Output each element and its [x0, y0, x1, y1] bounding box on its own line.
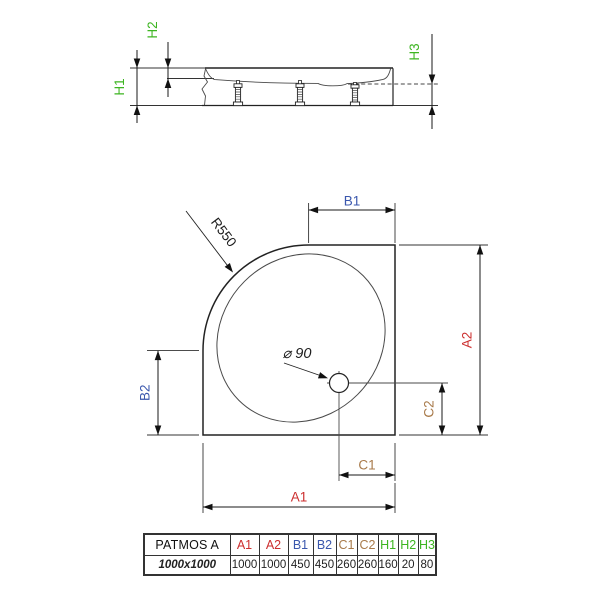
c1-label: C1 [358, 458, 375, 473]
value-c1: 260 [336, 556, 357, 576]
foot [295, 81, 304, 106]
b2-dimension: B2 [138, 351, 200, 435]
a1-label: A1 [291, 490, 308, 505]
h1-label: H1 [112, 78, 127, 95]
b1-dimension: B1 [309, 194, 395, 244]
value-h3: 80 [418, 556, 436, 576]
header-h2: H2 [398, 534, 418, 556]
foot [233, 81, 242, 106]
b1-label: B1 [344, 194, 361, 209]
radius-label: R550 [208, 215, 239, 250]
foot [350, 83, 359, 106]
c1-dimension: C1 [339, 443, 395, 481]
size-cell: 1000x1000 [144, 556, 230, 576]
header-h1: H1 [378, 534, 398, 556]
a2-label: A2 [460, 332, 475, 349]
c2-label: C2 [422, 400, 437, 417]
header-row: PATMOS A A1 A2 B1 B2 C1 C2 H1 H2 H3 [144, 534, 436, 556]
header-a1: A1 [230, 534, 259, 556]
spec-table: PATMOS A A1 A2 B1 B2 C1 C2 H1 H2 H3 1000… [143, 533, 437, 576]
a2-dimension: A2 [399, 245, 488, 435]
value-b1: 450 [288, 556, 313, 576]
value-a2: 1000 [259, 556, 288, 576]
break-line [202, 69, 208, 105]
value-h1: 160 [378, 556, 398, 576]
product-name-cell: PATMOS A [144, 534, 230, 556]
adjustable-feet [233, 81, 359, 106]
value-c2: 260 [357, 556, 378, 576]
header-c2: C2 [357, 534, 378, 556]
h2-dimension: H2 [145, 21, 171, 97]
value-h2: 20 [398, 556, 418, 576]
c2-dimension: C2 [422, 383, 446, 435]
tray-outline [203, 245, 395, 435]
header-c1: C1 [336, 534, 357, 556]
header-b1: B1 [288, 534, 313, 556]
technical-drawing-page: H1 H2 H3 R550 [0, 0, 600, 600]
h2-label: H2 [145, 21, 160, 38]
h3-label: H3 [407, 43, 422, 60]
plan-view: R550 ⌀ 90 B1 B2 [138, 194, 489, 514]
header-b2: B2 [313, 534, 336, 556]
side-view: H1 H2 H3 [112, 21, 438, 129]
a1-dimension: A1 [203, 443, 395, 513]
radius-leader: R550 [186, 211, 239, 274]
h1-dimension: H1 [112, 50, 140, 123]
basin-section-line [206, 69, 391, 86]
header-a2: A2 [259, 534, 288, 556]
drain-label: ⌀ 90 [283, 346, 312, 362]
value-b2: 450 [313, 556, 336, 576]
drawing-canvas: H1 H2 H3 R550 [0, 0, 600, 600]
value-a1: 1000 [230, 556, 259, 576]
header-h3: H3 [418, 534, 436, 556]
values-row: 1000x1000 1000 1000 450 450 260 260 160 … [144, 556, 436, 576]
h3-dimension: H3 [407, 34, 435, 129]
b2-label: B2 [138, 385, 153, 402]
drain-hole [330, 374, 349, 393]
